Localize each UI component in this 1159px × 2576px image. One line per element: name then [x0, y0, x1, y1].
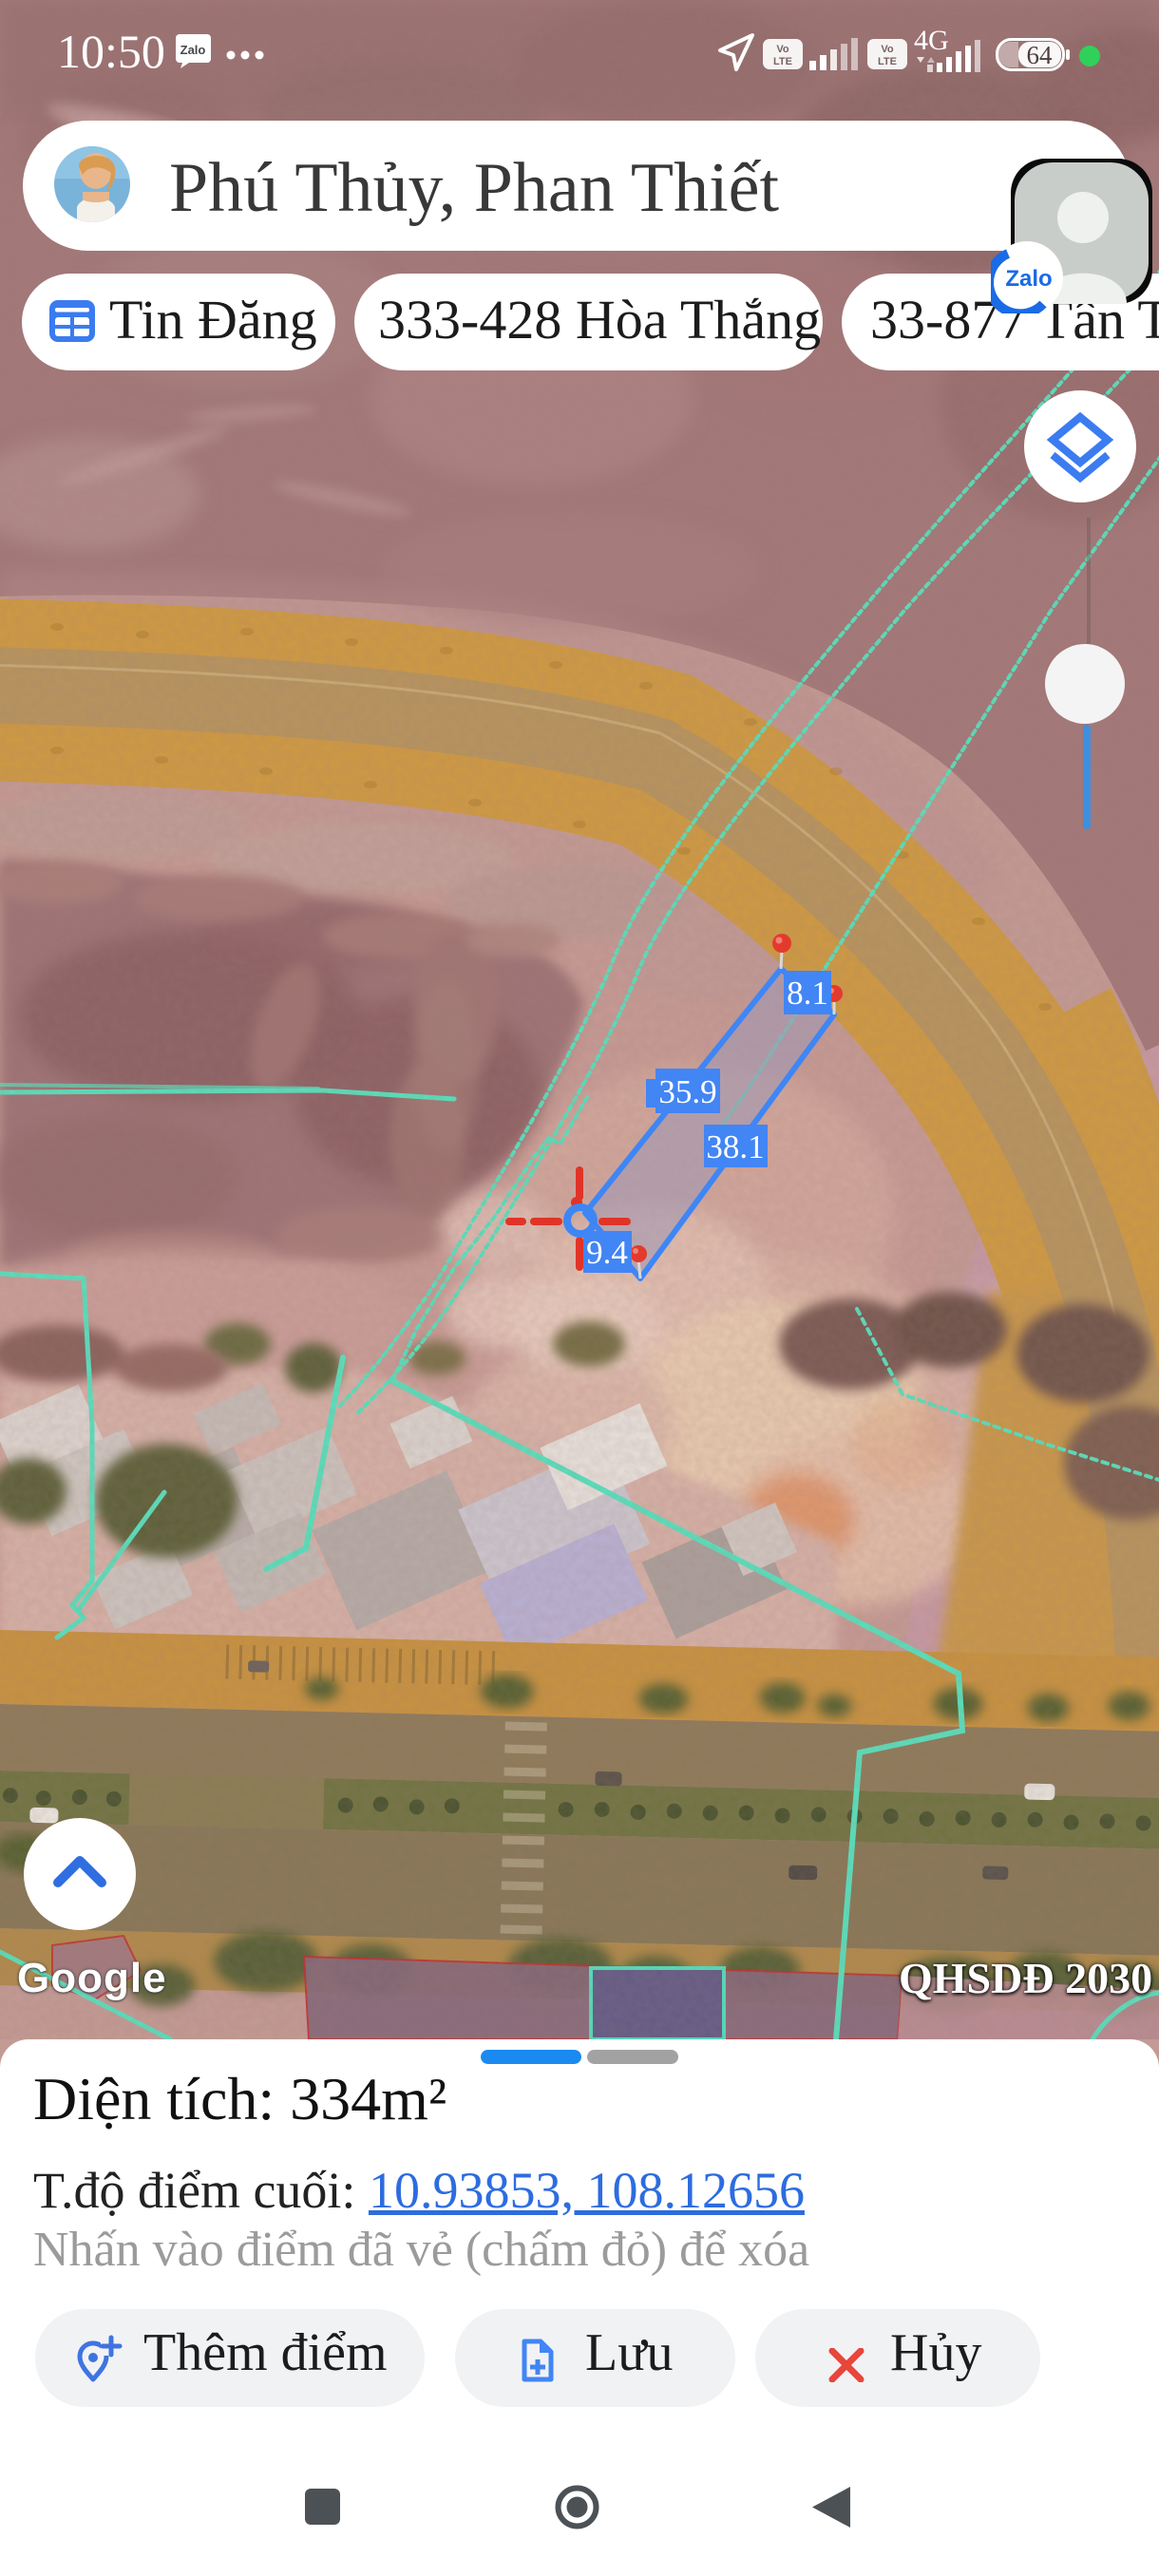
- svg-text:Vo: Vo: [776, 44, 789, 55]
- svg-text:LTE: LTE: [878, 56, 897, 67]
- svg-text:8.1: 8.1: [787, 975, 828, 1012]
- svg-text:35.9: 35.9: [658, 1073, 716, 1110]
- svg-text:LTE: LTE: [773, 56, 792, 67]
- svg-text:Vo: Vo: [881, 44, 894, 55]
- svg-text:64: 64: [1027, 41, 1054, 69]
- svg-text:38.1: 38.1: [706, 1128, 764, 1165]
- svg-text:9.4: 9.4: [586, 1234, 628, 1271]
- svg-text:Zalo: Zalo: [1005, 266, 1052, 292]
- svg-text:Zalo: Zalo: [180, 43, 206, 57]
- svg-text:4G: 4G: [914, 27, 949, 56]
